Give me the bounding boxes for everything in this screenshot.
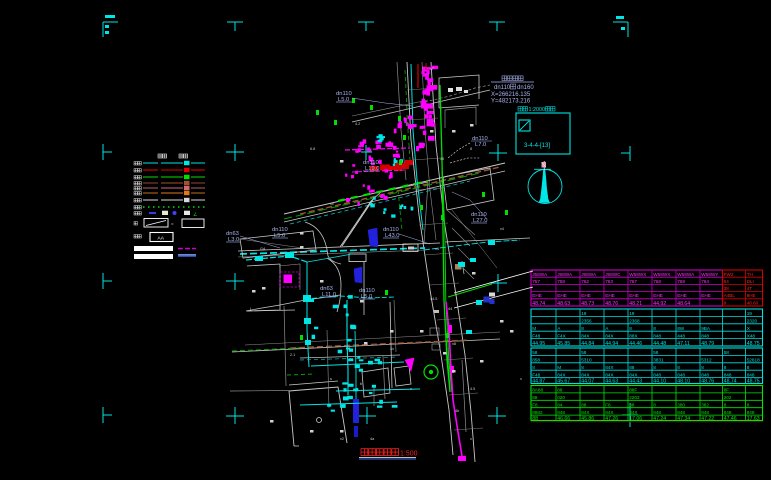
svg-text:17.06: 17.06 [629, 416, 642, 422]
svg-text:84: 84 [557, 403, 563, 408]
svg-text:J58WA: J58WA [581, 272, 597, 277]
svg-text:x: x [520, 377, 522, 381]
svg-text:84X: 84X [629, 372, 638, 377]
svg-text:48.73: 48.73 [581, 301, 594, 307]
svg-text:64: 64 [724, 279, 730, 284]
svg-text:84X: 84X [581, 372, 590, 377]
svg-text:DLI: DLI [747, 279, 754, 284]
svg-text:x4: x4 [500, 227, 504, 231]
svg-text:19: 19 [747, 311, 753, 316]
svg-text:38: 38 [724, 286, 730, 291]
svg-text:W58WX: W58WX [629, 272, 647, 277]
svg-text:x: x [410, 387, 412, 391]
svg-text:9: 9 [724, 301, 727, 306]
svg-text:∠: ∠ [193, 212, 197, 218]
svg-text:J58WA: J58WA [557, 272, 573, 277]
svg-text:8: 8 [629, 326, 632, 331]
svg-text:848: 848 [653, 333, 661, 338]
svg-text:44.84: 44.84 [581, 341, 594, 347]
svg-text:58: 58 [724, 350, 730, 355]
svg-text:EHE: EHE [557, 293, 567, 298]
svg-text:X=266216.135: X=266216.135 [491, 92, 531, 98]
svg-text:GA: GA [260, 247, 266, 251]
svg-text:dn110: dn110 [494, 85, 511, 91]
svg-text:48.79: 48.79 [701, 341, 714, 347]
svg-text:848: 848 [701, 333, 709, 338]
svg-text:W58WY: W58WY [701, 272, 719, 277]
svg-text:757: 757 [532, 279, 540, 284]
svg-text:380: 380 [677, 403, 685, 408]
svg-text:88: 88 [629, 365, 635, 370]
svg-text:L: L [250, 307, 252, 311]
svg-text:48.64: 48.64 [677, 301, 690, 307]
svg-text:8HE: 8HE [747, 293, 756, 298]
svg-text:848: 848 [724, 410, 732, 415]
svg-text:44.48: 44.48 [653, 341, 666, 347]
svg-text:2202: 2202 [629, 395, 640, 400]
svg-text:88: 88 [629, 403, 635, 408]
svg-text:1:500: 1:500 [400, 451, 418, 458]
svg-text:84X: 84X [629, 410, 638, 415]
svg-text:3831: 3831 [653, 358, 664, 363]
svg-text:EHE: EHE [605, 293, 615, 298]
svg-text:F48: F48 [532, 372, 540, 377]
svg-text:8: 8 [581, 365, 584, 370]
svg-text:8882: 8882 [532, 410, 543, 415]
svg-text:382: 382 [701, 403, 709, 408]
svg-text:45.67: 45.67 [557, 379, 570, 385]
svg-text:M: M [532, 326, 536, 331]
svg-text:44.10: 44.10 [653, 379, 666, 385]
svg-text:Y=482173.216: Y=482173.216 [491, 99, 531, 105]
svg-text:44.07: 44.07 [581, 379, 594, 385]
svg-text:764: 764 [701, 279, 709, 284]
svg-text:848: 848 [677, 372, 685, 377]
svg-text:8: 8 [747, 365, 750, 370]
svg-text:8: 8 [532, 365, 535, 370]
svg-text:848: 848 [747, 372, 755, 377]
svg-text:848: 848 [653, 410, 661, 415]
svg-text:F8: F8 [605, 403, 611, 408]
svg-text:84X: 84X [605, 333, 614, 338]
svg-text:W58WA: W58WA [677, 272, 695, 277]
svg-text:48.74: 48.74 [532, 301, 545, 307]
svg-text:44.87: 44.87 [532, 379, 545, 385]
svg-text:M: M [557, 365, 561, 370]
svg-text:EHE: EHE [629, 293, 639, 298]
svg-text:84X: 84X [581, 410, 590, 415]
svg-text:8: 8 [653, 403, 656, 408]
svg-text:48.76: 48.76 [605, 301, 618, 307]
svg-text:202: 202 [724, 395, 732, 400]
svg-text:47.11: 47.11 [677, 341, 690, 347]
svg-text:58: 58 [653, 350, 659, 355]
svg-text:EHE: EHE [677, 293, 687, 298]
svg-text:F4X: F4X [557, 333, 566, 338]
svg-text:1:2000: 1:2000 [529, 107, 546, 113]
svg-text:6.8: 6.8 [310, 147, 315, 151]
svg-text:88: 88 [581, 403, 587, 408]
svg-text:x8: x8 [452, 342, 456, 346]
svg-text:44.95: 44.95 [532, 341, 545, 347]
svg-text:45.85: 45.85 [557, 341, 570, 347]
svg-text:768: 768 [653, 279, 661, 284]
svg-text:848: 848 [677, 410, 685, 415]
svg-text:17.63: 17.63 [747, 416, 760, 422]
svg-text:47.34: 47.34 [677, 416, 690, 422]
svg-text:9BA: 9BA [701, 326, 711, 331]
svg-text:3-4-4-[13]: 3-4-4-[13] [524, 143, 550, 149]
svg-text:46.66: 46.66 [557, 416, 570, 422]
svg-text:xx: xx [330, 202, 334, 206]
svg-text:L7.0: L7.0 [475, 142, 486, 148]
svg-text:4.5: 4.5 [470, 387, 475, 391]
svg-text:84X: 84X [605, 365, 614, 370]
svg-text:848: 848 [557, 410, 565, 415]
svg-text:4x: 4x [390, 347, 394, 351]
svg-text:48.76: 48.76 [701, 379, 714, 385]
svg-text:84X: 84X [605, 372, 614, 377]
svg-text:44.5: 44.5 [430, 297, 437, 301]
svg-text:88X: 88X [629, 333, 638, 338]
svg-text:b: b [360, 382, 362, 386]
svg-text:448: 448 [677, 333, 685, 338]
svg-text:4T: 4T [747, 286, 753, 291]
svg-text:45.86: 45.86 [581, 416, 594, 422]
svg-text:48.21: 48.21 [629, 301, 642, 307]
svg-text:8A88: 8A88 [532, 388, 543, 393]
svg-text:EHE: EHE [653, 293, 663, 298]
svg-text:X48: X48 [747, 333, 756, 338]
svg-text:44.46: 44.46 [629, 341, 642, 347]
svg-text:762: 762 [581, 279, 589, 284]
svg-text:44.63: 44.63 [605, 379, 618, 385]
svg-text:47.22: 47.22 [701, 416, 714, 422]
svg-text:88: 88 [557, 388, 563, 393]
svg-text:=: = [171, 221, 174, 226]
svg-text:848: 848 [701, 372, 709, 377]
svg-text:A4BL: A4BL [724, 293, 736, 298]
svg-text:8: 8 [701, 365, 704, 370]
svg-text:758: 758 [557, 279, 565, 284]
svg-text:48.75: 48.75 [747, 341, 760, 347]
svg-text:dn160: dn160 [517, 85, 534, 91]
svg-text:x2: x2 [340, 437, 344, 441]
svg-text:44.94: 44.94 [605, 341, 618, 347]
svg-text:88: 88 [532, 395, 538, 400]
svg-text:8: 8 [653, 326, 656, 331]
svg-text:44.43: 44.43 [629, 379, 642, 385]
svg-text:EHE: EHE [581, 293, 591, 298]
svg-text:48.75: 48.75 [747, 379, 760, 385]
svg-text:EHE: EHE [532, 293, 542, 298]
svg-text:F8: F8 [532, 403, 538, 408]
svg-text:J58WC: J58WC [605, 272, 621, 277]
svg-text:2368: 2368 [629, 319, 640, 324]
svg-text:8: 8 [747, 403, 750, 408]
svg-text:8: 8 [470, 147, 472, 151]
svg-text:FW2: FW2 [724, 272, 734, 277]
svg-text:2356: 2356 [581, 319, 592, 324]
svg-text:x: x [470, 437, 472, 441]
svg-text:58: 58 [581, 350, 587, 355]
svg-text:58: 58 [532, 350, 538, 355]
svg-text:848: 848 [653, 372, 661, 377]
svg-text:88F: 88F [629, 388, 637, 393]
svg-text:48.74: 48.74 [724, 379, 737, 385]
svg-text:x4: x4 [435, 247, 439, 251]
svg-text:84X: 84X [605, 410, 614, 415]
svg-text:44: 44 [448, 307, 452, 311]
svg-text:AA: AA [158, 236, 165, 242]
svg-text:4.2: 4.2 [355, 122, 360, 126]
svg-text:J58WA: J58WA [532, 272, 548, 277]
svg-text:47.24: 47.24 [653, 416, 666, 422]
svg-text:EHE: EHE [701, 293, 711, 298]
svg-text:763: 763 [605, 279, 613, 284]
svg-text:F48: F48 [532, 333, 540, 338]
svg-text:8: 8 [653, 365, 656, 370]
svg-text:848: 848 [701, 410, 709, 415]
svg-text:8: 8 [581, 326, 584, 331]
svg-text:45: 45 [440, 157, 444, 161]
svg-text:4b: 4b [455, 409, 459, 413]
svg-text:8: 8 [724, 403, 727, 408]
svg-text:19: 19 [629, 311, 635, 316]
svg-text:48.60: 48.60 [747, 301, 759, 306]
svg-text:848: 848 [747, 410, 755, 415]
svg-text:44.92: 44.92 [653, 301, 666, 307]
svg-text:84X: 84X [557, 372, 566, 377]
svg-text:8W: 8W [677, 326, 685, 331]
svg-text:2320: 2320 [747, 319, 758, 324]
svg-text:47.46: 47.46 [724, 416, 737, 422]
svg-text:19: 19 [581, 311, 587, 316]
svg-text:8: 8 [724, 365, 727, 370]
svg-text:52618: 52618 [747, 358, 760, 363]
svg-text:020: 020 [557, 395, 565, 400]
svg-text:48.10: 48.10 [677, 379, 690, 385]
svg-text:769: 769 [677, 279, 685, 284]
svg-text:48.63: 48.63 [557, 301, 570, 307]
svg-text:84X: 84X [581, 333, 590, 338]
svg-text:8: 8 [677, 365, 680, 370]
svg-text:848: 848 [724, 372, 732, 377]
svg-text:x7: x7 [430, 67, 434, 71]
svg-text:88: 88 [532, 416, 538, 422]
svg-text:s: s [330, 377, 332, 381]
svg-text:5312: 5312 [701, 358, 712, 363]
svg-text:2.1: 2.1 [290, 353, 295, 357]
svg-text:W58WX: W58WX [653, 272, 671, 277]
svg-text:767: 767 [629, 279, 637, 284]
svg-text:858: 858 [532, 358, 540, 363]
svg-text:TH: TH [747, 272, 753, 277]
svg-text:5310: 5310 [581, 358, 592, 363]
svg-text:47.26: 47.26 [605, 416, 618, 422]
svg-text:8F: 8F [724, 388, 730, 393]
